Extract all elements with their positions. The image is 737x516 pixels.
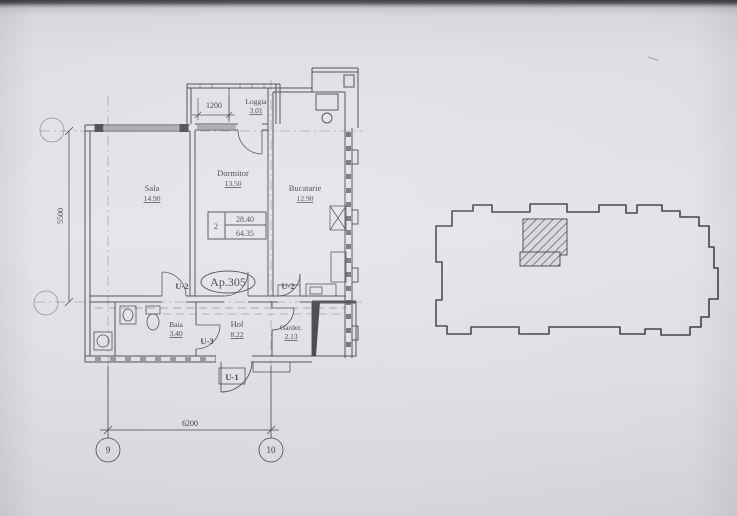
room-label-baia: Baia <box>169 320 183 329</box>
room-label-loggia: Loggia <box>245 97 267 106</box>
axis-grid-lines <box>35 80 362 437</box>
plan-labels: Sala 14.90 Dormitor 13.50 Bucatarie 12.9… <box>56 97 322 455</box>
door-label-u2-right: U-2 <box>281 281 294 291</box>
room-label-sala: Sala <box>145 183 160 193</box>
spec-total-area: 64.35 <box>236 229 254 238</box>
axis-bubble-10: 10 <box>267 445 277 455</box>
apartment-location-hatch-ext <box>520 252 560 266</box>
room-area-baia: 3.40 <box>169 329 182 338</box>
apartment-walls <box>34 68 362 462</box>
key-plan <box>436 204 718 335</box>
apartment-id: Ap.305 <box>210 275 246 289</box>
room-area-sala: 14.90 <box>144 194 161 203</box>
spec-living-area: 28.40 <box>236 215 254 224</box>
dim-vertical <box>34 118 73 315</box>
door-label-u3: U-3 <box>200 336 213 346</box>
door-label-u1: U-1 <box>225 372 238 382</box>
axis-bubble-9: 9 <box>106 445 111 455</box>
apartment-location-hatch <box>523 219 567 255</box>
top-right-block <box>312 68 358 128</box>
scanned-floor-plan-photo: Sala 14.90 Dormitor 13.50 Bucatarie 12.9… <box>0 0 737 516</box>
dim-text-6200: 6200 <box>182 419 198 428</box>
room-label-bucatarie: Bucatarie <box>289 183 322 193</box>
interior-walls <box>90 88 346 392</box>
room-label-hol: Hol <box>231 319 244 329</box>
room-area-garderoba: 2.13 <box>284 332 297 341</box>
room-area-hol: 8.22 <box>230 330 243 339</box>
dim-horizontal <box>96 366 283 462</box>
dim-text-5500: 5500 <box>56 208 65 224</box>
scan-speck <box>648 57 658 60</box>
building-outline <box>436 204 718 335</box>
floor-plan-drawing: Sala 14.90 Dormitor 13.50 Bucatarie 12.9… <box>0 0 737 516</box>
room-label-garderoba: Garder. <box>280 323 302 332</box>
dim-text-1200: 1200 <box>206 101 222 110</box>
spec-rooms-count: 2 <box>214 222 218 231</box>
room-area-loggia: 3.01 <box>249 106 262 115</box>
room-area-bucatarie: 12.90 <box>297 194 314 203</box>
room-label-dormitor: Dormitor <box>217 168 249 178</box>
door-label-u2-left: U-2 <box>175 281 188 291</box>
room-area-dormitor: 13.50 <box>225 179 242 188</box>
